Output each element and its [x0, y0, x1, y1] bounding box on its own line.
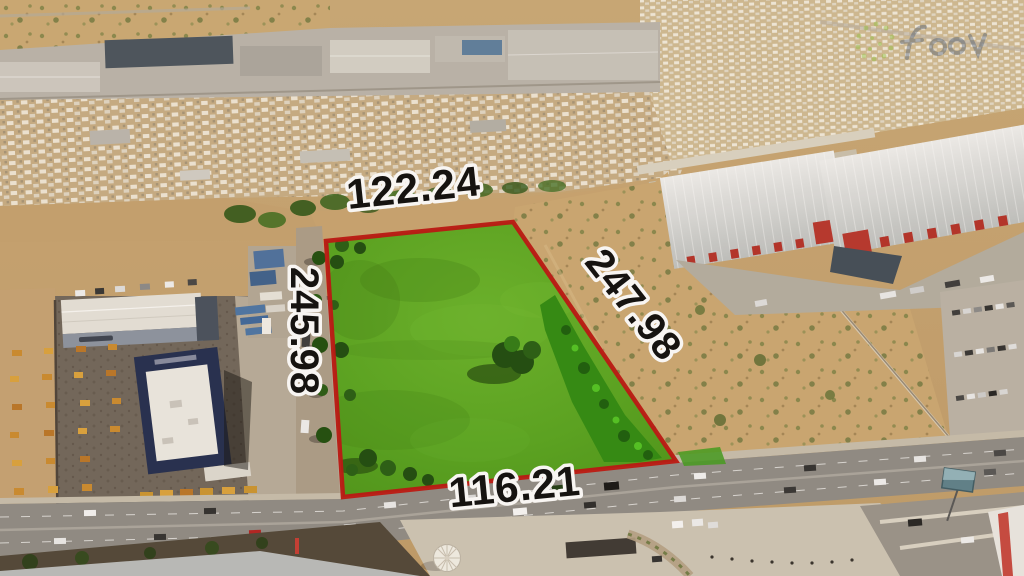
- photo-tint-overlay: [0, 0, 1024, 576]
- aerial-photo: 122.24 245.98 247.98 116.21: [0, 0, 1024, 576]
